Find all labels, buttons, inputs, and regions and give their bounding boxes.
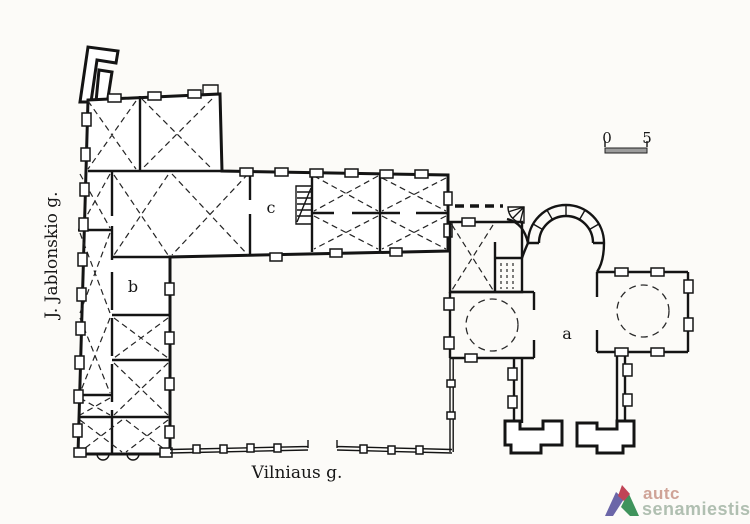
street-label-left: J. Jablonskio g. — [42, 191, 62, 320]
room-label-b: b — [128, 277, 138, 296]
room-label-c: c — [267, 198, 276, 217]
nave-walls — [514, 352, 625, 427]
west-chapel — [450, 292, 534, 358]
courtyard-street-wall — [170, 358, 455, 454]
monastery-outline — [78, 94, 448, 454]
west-chapel-dome — [466, 299, 518, 351]
sacristy-stair — [501, 263, 513, 289]
mountain-triangle-icon — [605, 485, 639, 516]
monastery-wings — [73, 47, 452, 460]
scale-bar-rule — [605, 148, 647, 153]
sacristy — [450, 222, 522, 292]
east-chapel — [597, 272, 688, 352]
room-label-a: a — [562, 324, 572, 343]
courtyard-wall-reveals — [165, 248, 402, 438]
entrance-pier-west — [505, 421, 562, 453]
street-label-bottom: Vilniaus g. — [251, 463, 343, 483]
floor-plan-drawing: J. Jablonskio g. Vilniaus g. a b c 0 5 a… — [0, 0, 750, 524]
church-pilasters — [444, 218, 693, 408]
entrance-pier-east — [577, 421, 634, 453]
scale-bar-zero-label: 0 — [602, 129, 612, 147]
floor-plan-page: J. Jablonskio g. Vilniaus g. a b c 0 5 a… — [0, 0, 750, 524]
east-chapel-dome — [617, 285, 669, 337]
watermark-logo: autc senamiestis — [605, 484, 750, 519]
scale-bar-five-label: 5 — [642, 129, 652, 147]
watermark-line2: senamiestis — [642, 499, 750, 519]
scale-bar: 0 5 — [602, 129, 652, 153]
